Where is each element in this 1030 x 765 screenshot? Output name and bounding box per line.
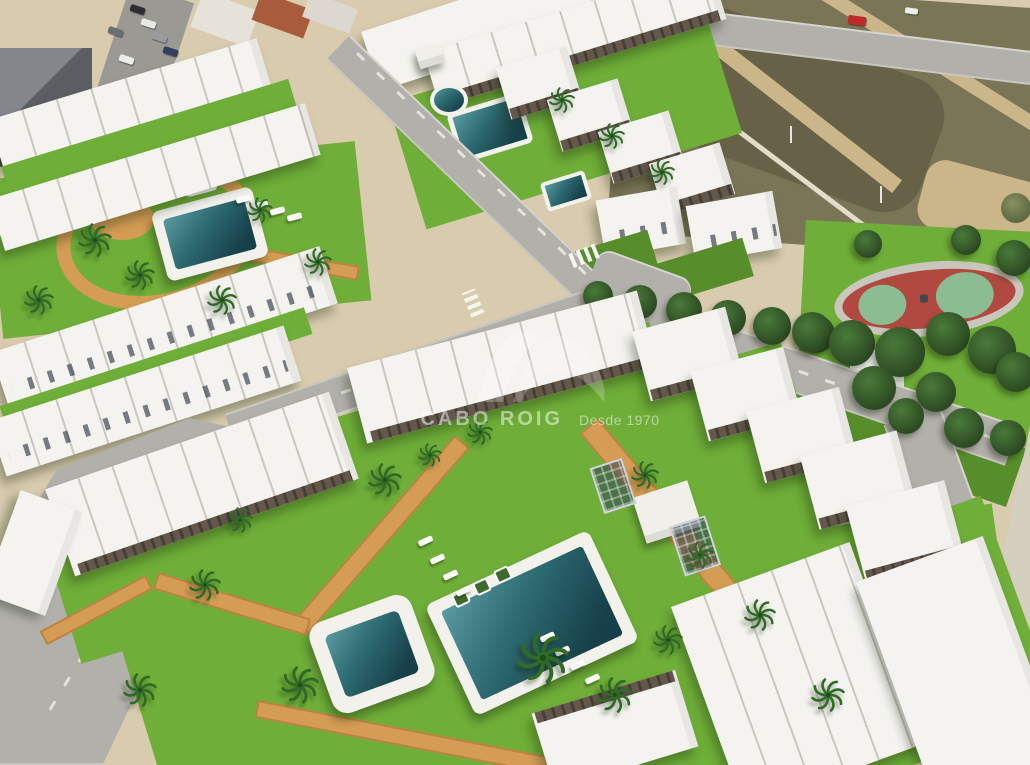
roadside-tree bbox=[1001, 193, 1030, 223]
pine-tree bbox=[926, 312, 970, 356]
palm-tree bbox=[631, 461, 659, 489]
terracotta-roof-building bbox=[252, 0, 314, 39]
pine-tree bbox=[916, 372, 956, 412]
street-lamp bbox=[880, 186, 882, 203]
watermark-text: CABO ROIG Desde 1970 bbox=[400, 408, 680, 431]
palm-tree bbox=[247, 197, 273, 223]
watermark-tagline: Desde 1970 bbox=[579, 412, 660, 428]
watermark-brand: CABO ROIG bbox=[420, 408, 563, 431]
palm-tree bbox=[686, 541, 714, 569]
palm-tree bbox=[368, 463, 402, 497]
palm-tree bbox=[597, 677, 633, 713]
palm-tree bbox=[304, 248, 332, 276]
watermark: CABO ROIG Desde 1970 bbox=[400, 314, 680, 431]
plunge-pool bbox=[324, 610, 420, 699]
pine-tree bbox=[852, 366, 896, 410]
community-pool bbox=[163, 198, 258, 270]
palm-tree bbox=[744, 599, 776, 631]
pine-tree bbox=[829, 320, 875, 366]
palm-tree bbox=[123, 673, 157, 707]
street-lamp bbox=[790, 126, 792, 143]
palm-tree bbox=[549, 87, 575, 113]
play-equipment bbox=[920, 294, 929, 303]
pine-tree bbox=[944, 408, 984, 448]
palm-tree bbox=[281, 666, 319, 704]
palm-tree bbox=[599, 123, 625, 149]
palm-tree bbox=[78, 223, 112, 257]
pine-tree bbox=[996, 352, 1030, 392]
pine-tree bbox=[888, 398, 924, 434]
palm-tree bbox=[517, 632, 569, 684]
palm-tree bbox=[207, 285, 237, 315]
palm-tree bbox=[811, 678, 845, 712]
palm-tree bbox=[189, 569, 221, 601]
playground-green-circle bbox=[856, 283, 908, 328]
pine-tree bbox=[753, 307, 791, 345]
palm-tree bbox=[653, 625, 683, 655]
palm-tree bbox=[24, 285, 54, 315]
palm-tree bbox=[418, 443, 442, 467]
palm-tree bbox=[125, 260, 155, 290]
pine-tree bbox=[951, 225, 981, 255]
palm-tree bbox=[227, 507, 253, 533]
urban-building bbox=[302, 0, 358, 34]
pine-tree bbox=[990, 420, 1026, 456]
pine-tree bbox=[854, 230, 882, 258]
cabo-roig-emblem-icon bbox=[430, 314, 650, 406]
palm-tree bbox=[649, 159, 675, 185]
aerial-render-canvas: CABO ROIG Desde 1970 bbox=[0, 0, 1030, 765]
pine-tree bbox=[996, 240, 1030, 276]
pine-tree bbox=[792, 312, 832, 352]
